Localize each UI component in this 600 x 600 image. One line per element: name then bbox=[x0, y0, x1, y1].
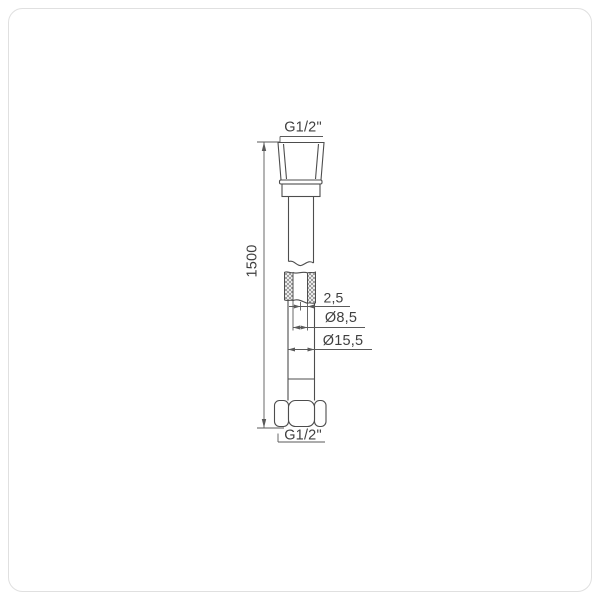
arrow-right-icon bbox=[294, 305, 301, 309]
dimension-length: 1500 bbox=[245, 142, 285, 428]
upper-hose-tube bbox=[289, 197, 314, 266]
technical-drawing: 1500 G1/2" bbox=[0, 0, 600, 600]
hex-nut bbox=[275, 401, 327, 427]
break-section bbox=[285, 272, 316, 303]
arrow-left-icon bbox=[293, 326, 300, 330]
bottom-thread-annotation: G1/2" bbox=[278, 428, 325, 444]
nut-face-left bbox=[275, 401, 289, 427]
arrow-down-icon bbox=[262, 419, 266, 428]
section-wall-left bbox=[285, 272, 294, 301]
top-thread-annotation: G1/2" bbox=[280, 120, 323, 143]
length-label: 1500 bbox=[245, 244, 261, 277]
arrow-right-icon bbox=[308, 348, 315, 352]
section-wall-right bbox=[308, 272, 316, 303]
inner-diameter-label: Ø8,5 bbox=[325, 310, 357, 326]
drawing-canvas: 1500 G1/2" bbox=[0, 0, 600, 600]
top-thread-label: G1/2" bbox=[284, 120, 322, 136]
cone-collar bbox=[282, 184, 320, 197]
arrow-left-icon bbox=[288, 348, 295, 352]
arrow-left-icon bbox=[308, 305, 315, 309]
bottom-thread-label: G1/2" bbox=[284, 428, 322, 444]
section-bore-wave-top bbox=[293, 272, 308, 273]
dimension-outer-diameter: Ø15,5 bbox=[288, 333, 372, 352]
arrow-up-icon bbox=[262, 142, 266, 151]
wall-thickness-label: 2,5 bbox=[323, 290, 343, 306]
arrow-right-icon bbox=[301, 326, 308, 330]
outer-diameter-label: Ø15,5 bbox=[323, 333, 364, 349]
nut-face-right bbox=[315, 401, 327, 427]
cone-ring bbox=[280, 180, 323, 184]
break-wave-top-tube bbox=[289, 261, 314, 265]
nut-face-middle bbox=[289, 401, 315, 427]
cone-fitting bbox=[278, 143, 324, 197]
